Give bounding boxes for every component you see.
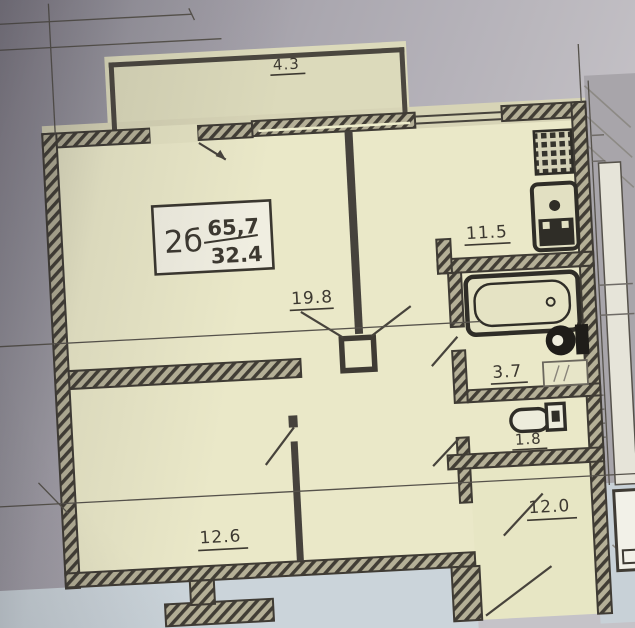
wall-bath-left-lower bbox=[452, 350, 468, 403]
room2-interior bbox=[470, 462, 600, 620]
wall-top-pier bbox=[197, 123, 253, 140]
wall-below-stem bbox=[190, 580, 215, 605]
room2-area-label: 12.0 bbox=[528, 496, 571, 518]
floorplan-photo: 2б 65,7 32.4 4.3 11.5 19.8 3.7 1.8 12.6 … bbox=[0, 0, 635, 628]
wall-bath-left-upper bbox=[448, 272, 464, 327]
toilet-icon bbox=[545, 324, 590, 356]
bedroom-door-jamb bbox=[288, 415, 298, 427]
washer-icon bbox=[543, 360, 588, 386]
living-area-label: 19.8 bbox=[291, 287, 334, 309]
unit-stamp: 2б 65,7 32.4 bbox=[152, 200, 273, 274]
wall-kitchen-stub bbox=[436, 239, 452, 274]
unit-area-living: 32.4 bbox=[210, 242, 263, 269]
neighbor-unit-icon bbox=[614, 489, 635, 571]
balcony-door-opening bbox=[150, 124, 198, 144]
stove-icon bbox=[532, 182, 579, 250]
corridor-post bbox=[341, 337, 375, 371]
wall-room2-stub bbox=[458, 468, 472, 503]
wall-below-column bbox=[165, 599, 274, 627]
balcony-area-label: 4.3 bbox=[272, 55, 300, 74]
wall-bottom-corner bbox=[451, 566, 482, 621]
wc-area-label: 1.8 bbox=[514, 429, 542, 448]
kitchen-area-label: 11.5 bbox=[466, 222, 509, 244]
vent-grid-icon bbox=[534, 130, 573, 175]
unit-type-label: 2б bbox=[163, 223, 204, 261]
bathroom-area-label: 3.7 bbox=[492, 361, 523, 383]
floorplan-canvas: 2б 65,7 32.4 4.3 11.5 19.8 3.7 1.8 12.6 … bbox=[0, 0, 635, 628]
bedroom-area-label: 12.6 bbox=[199, 526, 242, 548]
